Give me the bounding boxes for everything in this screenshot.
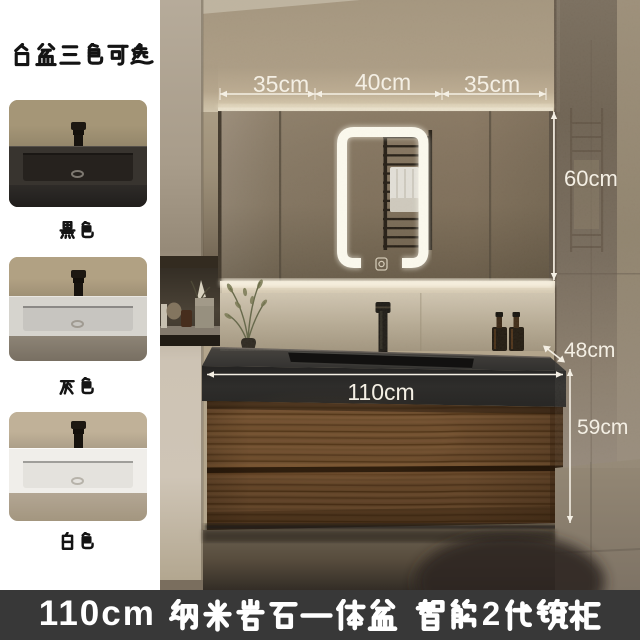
svg-text:60cm: 60cm (564, 166, 618, 191)
svg-text:48cm: 48cm (564, 339, 615, 362)
svg-text:35cm: 35cm (464, 71, 520, 97)
svg-text:35cm: 35cm (253, 71, 309, 97)
svg-text:110cm: 110cm (347, 379, 414, 405)
svg-text:59cm: 59cm (577, 416, 628, 439)
svg-text:40cm: 40cm (355, 69, 411, 95)
